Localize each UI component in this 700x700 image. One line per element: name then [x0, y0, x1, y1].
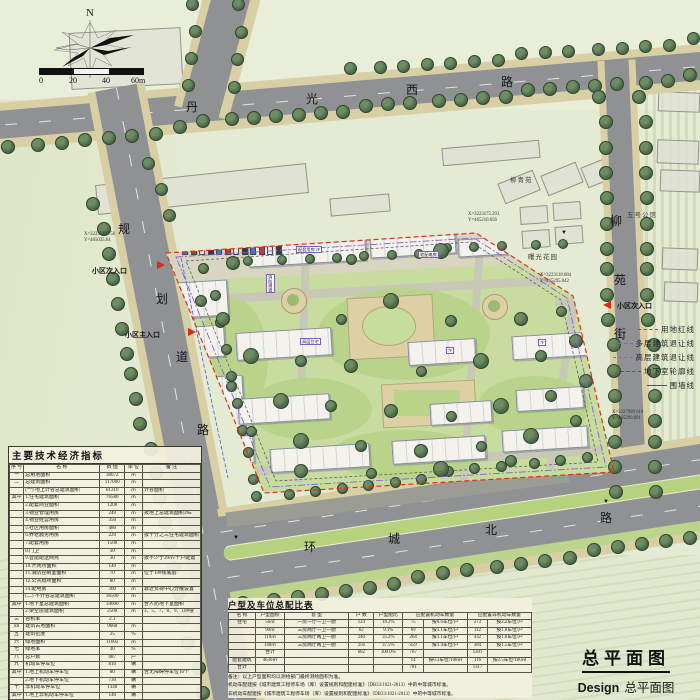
scale-tick-label: 40 — [102, 76, 110, 85]
cell — [10, 548, 24, 556]
cell: 3、5、7、8、9、10#楼 — [142, 609, 200, 617]
parking-allocation-table: 名 称户型面积套 型户 数户型配比应配置机动车数量应配置非机动车数量住宅56㎡一… — [228, 612, 532, 673]
cell: 1317 — [467, 665, 488, 672]
scale-seg — [109, 69, 143, 74]
cell — [229, 650, 256, 657]
note-line: 非机动车配建按《城市建筑工程停车场（库）设置规则和配建标准》（DB33/1021… — [228, 692, 532, 698]
design-title-cn: 总平面图 — [624, 681, 674, 695]
table-row: 2.架空层建筑面积2500㎡3、5、7、8、9、10#楼 — [10, 609, 201, 617]
cell — [285, 650, 349, 657]
legend-label: 用地红线 — [661, 324, 695, 335]
cell: 767 — [403, 650, 424, 657]
legend-item: 地下室轮廓线 — [590, 364, 695, 378]
cell — [424, 650, 468, 657]
cell: 其中 — [10, 495, 24, 503]
note-line: 机动车配建按《城市建筑工程停车场（库）设置规则和配建标准》（DB33/1021-… — [228, 683, 532, 689]
existing-building — [329, 193, 390, 216]
cell: 位于10#楼底层 — [142, 571, 200, 579]
cell: % — [124, 632, 142, 640]
cell: 建筑占地面积 — [24, 624, 100, 632]
table-row: 14.配电房300㎡靠近负荷中心分散设置 — [10, 586, 201, 594]
car-marker — [216, 246, 222, 255]
cell — [10, 510, 24, 518]
car-marker — [190, 246, 196, 255]
legend-item: 高层建筑退让线 — [590, 350, 695, 364]
table-row: 合计682100.0%7671201 — [229, 650, 532, 657]
existing-building — [540, 162, 583, 197]
cell: ㎡ — [124, 609, 142, 617]
cell: 总用地面积 — [24, 472, 100, 480]
cell: 34000 — [100, 601, 124, 609]
cell: ㎡ — [124, 639, 142, 647]
cell: ㎡ — [124, 472, 142, 480]
cell: 1340 — [100, 685, 124, 693]
cell: 辆 — [124, 692, 142, 700]
cell: 11.消防控制室面积 — [24, 571, 100, 579]
car-marker — [258, 246, 264, 255]
cell: 一房一厅一卫一厨 — [285, 620, 349, 627]
cell: ㎡ — [124, 525, 142, 533]
car-marker — [224, 246, 230, 255]
cell — [10, 586, 24, 594]
cell: 辆 — [124, 677, 142, 685]
cell — [142, 647, 200, 655]
cell: ㎡ — [124, 556, 142, 564]
existing-building — [658, 91, 700, 112]
cell — [10, 533, 24, 541]
table-row: 三容积率2.1 — [10, 616, 201, 624]
cell — [10, 677, 24, 685]
cell: 480 — [100, 525, 124, 533]
cell — [142, 525, 200, 533]
parking-table-title: 户型及车位总配比表 — [228, 598, 532, 612]
car-marker — [182, 246, 188, 255]
site-plan-canvas: N 0204060m 用地红线多层建筑退让线高层建筑退让线地下室轮廓线围墙线 丹… — [0, 0, 700, 700]
cell: 三房两厅一卫一厨 — [285, 627, 349, 634]
table-row: 140㎡三房两厅两卫一厨25637.5%359按1.4车位/户384按1.5车位… — [229, 642, 532, 649]
cell — [10, 609, 24, 617]
cell: 二 — [10, 480, 24, 488]
cell: 76580 — [100, 495, 124, 503]
cell: 按千分之三住宅建筑面积 — [142, 533, 200, 541]
cell: 70 — [100, 571, 124, 579]
cell: 1500 — [100, 540, 124, 548]
north-label: N — [86, 7, 94, 19]
cell: 384 — [467, 642, 488, 649]
legend-line-sample — [647, 385, 667, 386]
cell: 220 — [100, 533, 124, 541]
cell: 116 — [467, 657, 488, 664]
cell: 1.住宅建筑面积 — [24, 495, 100, 503]
cell: 3.物业管理用房 — [24, 510, 100, 518]
cell: 35.2% — [374, 635, 403, 642]
existing-building — [657, 139, 700, 164]
cell: 124 — [349, 620, 374, 627]
cell: 机动车停车位 — [24, 662, 100, 670]
cell — [124, 616, 142, 624]
legend-item: 多层建筑退让线 — [590, 336, 695, 350]
table-row: 4.物业经营用房350㎡ — [10, 518, 201, 526]
parking-allocation-panel: 户型及车位总配比表 名 称户型面积套 型户 数户型配比应配置机动车数量应配置非机… — [228, 598, 532, 698]
cell: 140 — [100, 692, 124, 700]
cell: 容积率 — [24, 616, 100, 624]
cell — [142, 594, 200, 602]
cell: 25 — [100, 632, 124, 640]
cell: 按0.6车位/户 — [424, 620, 468, 627]
cell: 建筑密度 — [24, 632, 100, 640]
cell — [142, 692, 200, 700]
cell: 1201 — [467, 650, 488, 657]
cell — [142, 502, 200, 510]
cell: 总户数 — [24, 654, 100, 662]
cell: 56㎡ — [255, 620, 284, 627]
cell: 5.社区用房面积 — [24, 525, 100, 533]
cell: 合计 — [255, 650, 284, 657]
cell — [142, 632, 200, 640]
building — [515, 386, 584, 412]
cell: 按2.2车位/户 — [488, 620, 532, 627]
header-cell: 序 号 — [10, 465, 24, 473]
cell — [142, 480, 200, 488]
cell: 30 — [100, 548, 124, 556]
coordinate-label: X=3223175.293Y=465210.656 — [468, 212, 499, 224]
windrose-lobe-outline — [56, 44, 90, 50]
cell: 2.1 — [100, 616, 124, 624]
cell — [229, 635, 256, 642]
table-row: 七绿地率30% — [10, 647, 201, 655]
cell: 140㎡ — [255, 642, 284, 649]
cell: 730 — [100, 677, 124, 685]
cell: 辆 — [124, 662, 142, 670]
header-cell: 名 称 — [229, 613, 256, 620]
cell: 6.养老服务用房 — [24, 533, 100, 541]
cell: 112 — [467, 627, 488, 634]
car-marker — [241, 246, 247, 255]
scale-labels: 0204060m — [39, 75, 144, 87]
cell: 户 — [124, 654, 142, 662]
car-marker — [207, 246, 213, 255]
roundabout-center — [287, 294, 299, 306]
table-row: 二总建筑面积117000㎡ — [10, 480, 201, 488]
cell — [142, 548, 200, 556]
header-cell: 户型配比 — [374, 613, 403, 620]
cell: 1.地上非机动车停车位 — [24, 692, 100, 700]
cell — [142, 685, 200, 693]
cell: (一) 地上计容总建筑面积 — [24, 487, 100, 495]
cell: 五 — [10, 632, 24, 640]
cell: 辆 — [124, 685, 142, 693]
cell — [349, 657, 374, 664]
car-marker — [250, 246, 256, 255]
cell: ㎡ — [124, 502, 142, 510]
existing-building — [552, 201, 581, 221]
cell: 总建筑面积 — [24, 480, 100, 488]
cell: 80 — [100, 578, 124, 586]
cell: 含人防地下室面积 — [142, 601, 200, 609]
legend-item: 用地红线 — [590, 322, 695, 336]
table-row: 90㎡三房两厅一卫一厨629.1%69按1.1车位/户112按1.8车位/户 — [229, 627, 532, 634]
cell: ㎡ — [124, 495, 142, 503]
existing-building — [497, 170, 540, 205]
existing-building — [521, 229, 550, 249]
cell — [10, 487, 24, 495]
cell — [142, 616, 200, 624]
table-row: 2.配套商业面积1200㎡ — [10, 502, 201, 510]
cell: ㎡ — [124, 624, 142, 632]
scale-tick-label: 60m — [131, 76, 145, 85]
cell: 62 — [349, 627, 374, 634]
drawing-title: 总平面图 — [582, 644, 670, 673]
cell: 按2.5车位/100㎡ — [488, 657, 532, 664]
table-row: 合计7811317 — [229, 665, 532, 672]
cell: 359 — [403, 642, 424, 649]
cell — [349, 665, 374, 672]
cell: 12.公共厕所面积 — [24, 578, 100, 586]
cell: 八 — [10, 654, 24, 662]
cell — [374, 657, 403, 664]
cell — [374, 665, 403, 672]
table-header-row: 序 号名 称数 值单 位备 注 — [10, 465, 201, 473]
cell — [142, 472, 200, 480]
cell: 30 — [100, 647, 124, 655]
cell: ㎡ — [124, 518, 142, 526]
cell — [142, 677, 200, 685]
cell: 9.智能配送网点 — [24, 556, 100, 564]
existing-building — [441, 140, 540, 166]
cell: 38672 — [100, 472, 124, 480]
legend-line-sample — [638, 329, 658, 330]
header-cell: 应配置非机动车数量 — [467, 613, 531, 620]
legend-line-sample — [621, 371, 641, 372]
table-row: 5.社区用房面积480㎡ — [10, 525, 201, 533]
scale-bar: 0204060m — [39, 68, 144, 87]
legend-line-sample — [613, 357, 633, 358]
cell: 14 — [403, 657, 424, 664]
cell: 30 — [100, 556, 124, 564]
cell: 432 — [467, 635, 488, 642]
cell: (二) 不计容总建筑面积 — [24, 594, 100, 602]
legend-label: 地下室轮廓线 — [644, 366, 695, 377]
scale-tick-label: 20 — [69, 76, 77, 85]
cell — [142, 518, 200, 526]
scale-seg — [74, 69, 108, 74]
legend-item: 围墙线 — [590, 378, 695, 392]
scale-seg — [40, 69, 74, 74]
cell — [488, 650, 532, 657]
table-row: 9.智能配送网点30㎡按不少于20㎡/千户配置 — [10, 556, 201, 564]
cell — [10, 518, 24, 526]
cell — [424, 665, 468, 672]
cell — [142, 563, 200, 571]
table-row: (二) 不计容总建筑面积36500㎡ — [10, 594, 201, 602]
existing-building — [554, 225, 583, 245]
header-cell: 套 型 — [285, 613, 349, 620]
indicator-table: 序 号名 称数 值单 位备 注一总用地面积38672㎡二总建筑面积117000㎡… — [9, 464, 201, 700]
design-label: Design — [578, 681, 620, 695]
roundabout-center — [488, 300, 500, 312]
cell: 按地上总建筑面积3‰ — [142, 510, 200, 518]
table-row: 配套建筑4630㎡14按0.3车位/100㎡116按2.5车位/100㎡ — [229, 657, 532, 664]
cell: 配套建筑 — [229, 657, 256, 664]
cell: 9668 — [100, 624, 124, 632]
cell: 140 — [100, 563, 124, 571]
cell: 非机动车停车位 — [24, 685, 100, 693]
cell: ㎡ — [124, 510, 142, 518]
coordinate-line: X=3223175.293 — [468, 212, 499, 218]
cell: 按1.1车位/户 — [424, 635, 468, 642]
cell: 按1.5车位/户 — [488, 642, 532, 649]
cell: 1.地上机动车停车位 — [24, 670, 100, 678]
table-row: 其中1.地上非机动车停车位140辆 — [10, 692, 201, 700]
table-row: 五建筑密度25% — [10, 632, 201, 640]
table-row: 九机动车停车位810辆 — [10, 662, 201, 670]
cell: 绿地面积 — [24, 639, 100, 647]
cell: 七 — [10, 647, 24, 655]
cell: 4.物业经营用房 — [24, 518, 100, 526]
building — [235, 327, 333, 361]
cell: 75 — [403, 620, 424, 627]
cell: 1.地下室总建筑面积 — [24, 601, 100, 609]
cell: 按不少于20㎡/千户配置 — [142, 556, 200, 564]
cell: ㎡ — [124, 571, 142, 579]
table-row: 8.门卫30㎡ — [10, 548, 201, 556]
cell: 264 — [403, 635, 424, 642]
existing-building — [660, 169, 700, 192]
economic-indicator-panel: 主要技术经济指标 序 号名 称数 值单 位备 注一总用地面积38672㎡二总建筑… — [8, 446, 202, 700]
cell: 110㎡ — [255, 635, 284, 642]
cell: 80 — [100, 670, 124, 678]
cell — [10, 571, 24, 579]
coordinate-line: Y=465210.656 — [468, 218, 499, 224]
table-row: 其中1.地下室总建筑面积34000㎡含人防地下室面积 — [10, 601, 201, 609]
table-row: 110㎡三房两厅两卫一厨24035.2%264按1.1车位/户432按1.8车位… — [229, 635, 532, 642]
cell: 三房两厅两卫一厨 — [285, 635, 349, 642]
cell: 住宅 — [229, 620, 256, 627]
cell — [229, 642, 256, 649]
cell: 350 — [100, 518, 124, 526]
cell: 2.地下机动车停车位 — [24, 677, 100, 685]
building — [429, 400, 492, 426]
internal-road — [555, 298, 615, 310]
cell — [285, 665, 349, 672]
cell: 9.1% — [374, 627, 403, 634]
cell — [142, 578, 200, 586]
cell: 其中 — [10, 692, 24, 700]
table-row: 10.开闭所面积140㎡ — [10, 563, 201, 571]
table-row: 十非机动车停车位1340辆 — [10, 685, 201, 693]
cell: 11602 — [100, 639, 124, 647]
header-cell: 数 值 — [100, 465, 124, 473]
table-header-row: 名 称户型面积套 型户 数户型配比应配置机动车数量应配置非机动车数量 — [229, 613, 532, 620]
parking-notes: 备注：以上户型面积均以测绘部门最终测绘面积为准。机动车配建按《城市建筑工程停车场… — [228, 675, 532, 698]
cell: 按1.4车位/户 — [424, 642, 468, 649]
cell: 14.配电房 — [24, 586, 100, 594]
cell — [142, 624, 200, 632]
cell — [142, 639, 200, 647]
cell: 按0.3车位/100㎡ — [424, 657, 468, 664]
table-row: 2.地下机动车停车位730辆 — [10, 677, 201, 685]
scale-bar-segments — [39, 68, 144, 75]
cell: ㎡ — [124, 533, 142, 541]
cell: 81210 — [100, 487, 124, 495]
cell: 九 — [10, 662, 24, 670]
cell — [10, 563, 24, 571]
table-row: 其中1.住宅建筑面积76580㎡ — [10, 495, 201, 503]
header-cell: 备 注 — [142, 465, 200, 473]
note-line: 备注：以上户型面积均以测绘部门最终测绘面积为准。 — [228, 675, 532, 681]
car-marker — [267, 246, 273, 255]
central-garden-oval — [362, 306, 416, 346]
table-row: 住宅56㎡一房一厅一卫一厨12418.2%75按0.6车位/户273按2.2车位… — [229, 620, 532, 627]
cell: 69 — [403, 627, 424, 634]
existing-building — [662, 247, 699, 270]
scale-tick-label: 0 — [39, 76, 43, 85]
cell: 8.门卫 — [24, 548, 100, 556]
cell: 300 — [100, 586, 124, 594]
tree-icon — [251, 491, 262, 502]
cell: ㎡ — [124, 601, 142, 609]
table-row: 3.物业管理用房240㎡按地上总建筑面积3‰ — [10, 510, 201, 518]
cell: 按1.8车位/户 — [488, 635, 532, 642]
cell — [488, 665, 532, 672]
cell: 辆 — [124, 670, 142, 678]
cell: 三 — [10, 616, 24, 624]
car-marker — [233, 246, 239, 255]
car-marker — [199, 246, 205, 255]
cell: 781 — [403, 665, 424, 672]
table-row: 四建筑占地面积9668㎡ — [10, 624, 201, 632]
cell — [142, 654, 200, 662]
legend-line-sample — [613, 343, 633, 344]
cell: 其中 — [10, 601, 24, 609]
cell: ㎡ — [124, 594, 142, 602]
table-row: 6.养老服务用房220㎡按千分之三住宅建筑面积 — [10, 533, 201, 541]
cell: 37.5% — [374, 642, 403, 649]
car-marker — [275, 246, 281, 255]
cell: ㎡ — [124, 487, 142, 495]
table-row: 六绿地面积11602㎡ — [10, 639, 201, 647]
cell: ㎡ — [124, 578, 142, 586]
cell: 绿地率 — [24, 647, 100, 655]
cell: % — [124, 647, 142, 655]
cell — [10, 502, 24, 510]
header-cell: 户 数 — [349, 613, 374, 620]
cell — [285, 657, 349, 664]
cell: 687 — [100, 654, 124, 662]
cell: 2.架空层建筑面积 — [24, 609, 100, 617]
building — [213, 435, 255, 465]
header-cell: 户型面积 — [255, 613, 284, 620]
cell: ㎡ — [124, 563, 142, 571]
cell: ㎡ — [124, 586, 142, 594]
cell — [10, 525, 24, 533]
drawing-title-block: 总平面图 Design总平面图 — [560, 644, 692, 696]
cell — [10, 594, 24, 602]
table-row: 11.消防控制室面积70㎡位于10#楼底层 — [10, 571, 201, 579]
cell: 117000 — [100, 480, 124, 488]
cell — [142, 540, 200, 548]
cell — [255, 665, 284, 672]
cell: 四 — [10, 624, 24, 632]
cell: 90㎡ — [255, 627, 284, 634]
cell: 三房两厅两卫一厨 — [285, 642, 349, 649]
drawing-subtitle: Design总平面图 — [560, 677, 692, 696]
cell: 810 — [100, 662, 124, 670]
cell: 682 — [349, 650, 374, 657]
legend-label: 多层建筑退让线 — [636, 338, 696, 349]
header-cell: 应配置机动车数量 — [403, 613, 467, 620]
cell — [142, 495, 200, 503]
